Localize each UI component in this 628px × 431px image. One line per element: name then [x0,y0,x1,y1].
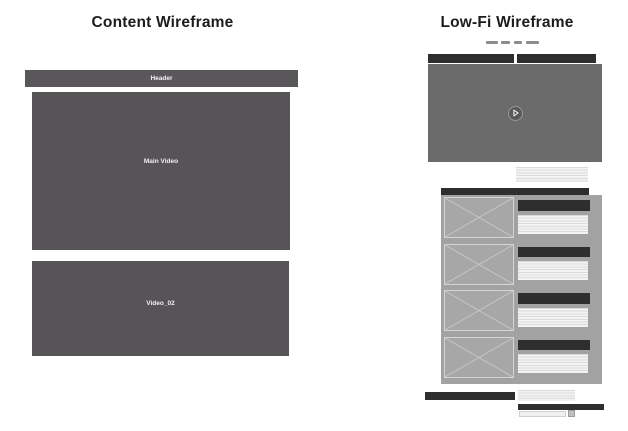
header-bar: Header [25,70,298,87]
content-wireframe-title: Content Wireframe [25,14,300,32]
play-button[interactable] [508,106,523,121]
list-item [441,290,602,331]
tab-left[interactable] [428,54,514,63]
search-input-placeholder[interactable] [519,411,566,418]
x-cross-icon [445,338,513,377]
nav-menu-placeholder [486,41,539,44]
nav-dash [526,41,540,44]
item-title-bar [518,200,590,211]
lowfi-wireframe-title: Low-Fi Wireframe [400,14,614,32]
footer-left-bar [425,392,515,400]
nav-dash [501,41,510,44]
search-button-placeholder[interactable] [568,410,575,417]
video-02-box: Video_02 [32,261,289,356]
item-text-placeholder [518,308,588,327]
item-title-bar [518,247,590,258]
list-item [441,244,602,285]
wireframe-canvas: Content Wireframe Header Main Video Vide… [0,0,628,431]
main-video-box: Main Video [32,92,290,250]
item-text-placeholder [518,354,588,373]
nav-dash [514,41,523,44]
section-header-bar [441,188,589,195]
list-item [441,337,602,378]
main-video-label: Main Video [144,158,178,165]
item-text-placeholder [518,215,588,234]
article-list [441,195,602,384]
header-bar-label: Header [150,75,172,82]
video-player-placeholder [428,64,602,162]
x-cross-icon [445,291,513,330]
item-title-bar [518,293,590,304]
nav-dash [486,41,498,44]
x-cross-icon [445,245,513,284]
image-placeholder [444,244,514,285]
image-placeholder [444,290,514,331]
play-icon [513,109,519,117]
tab-right[interactable] [517,54,596,63]
image-placeholder [444,337,514,378]
footer-text-placeholder [518,390,575,401]
item-text-placeholder [518,261,588,280]
item-title-bar [518,340,590,351]
image-placeholder [444,197,514,238]
intro-text-placeholder [516,167,588,182]
x-cross-icon [445,198,513,237]
list-item [441,197,602,238]
footer-dark-bar [518,404,604,410]
video-02-label: Video_02 [146,300,174,307]
